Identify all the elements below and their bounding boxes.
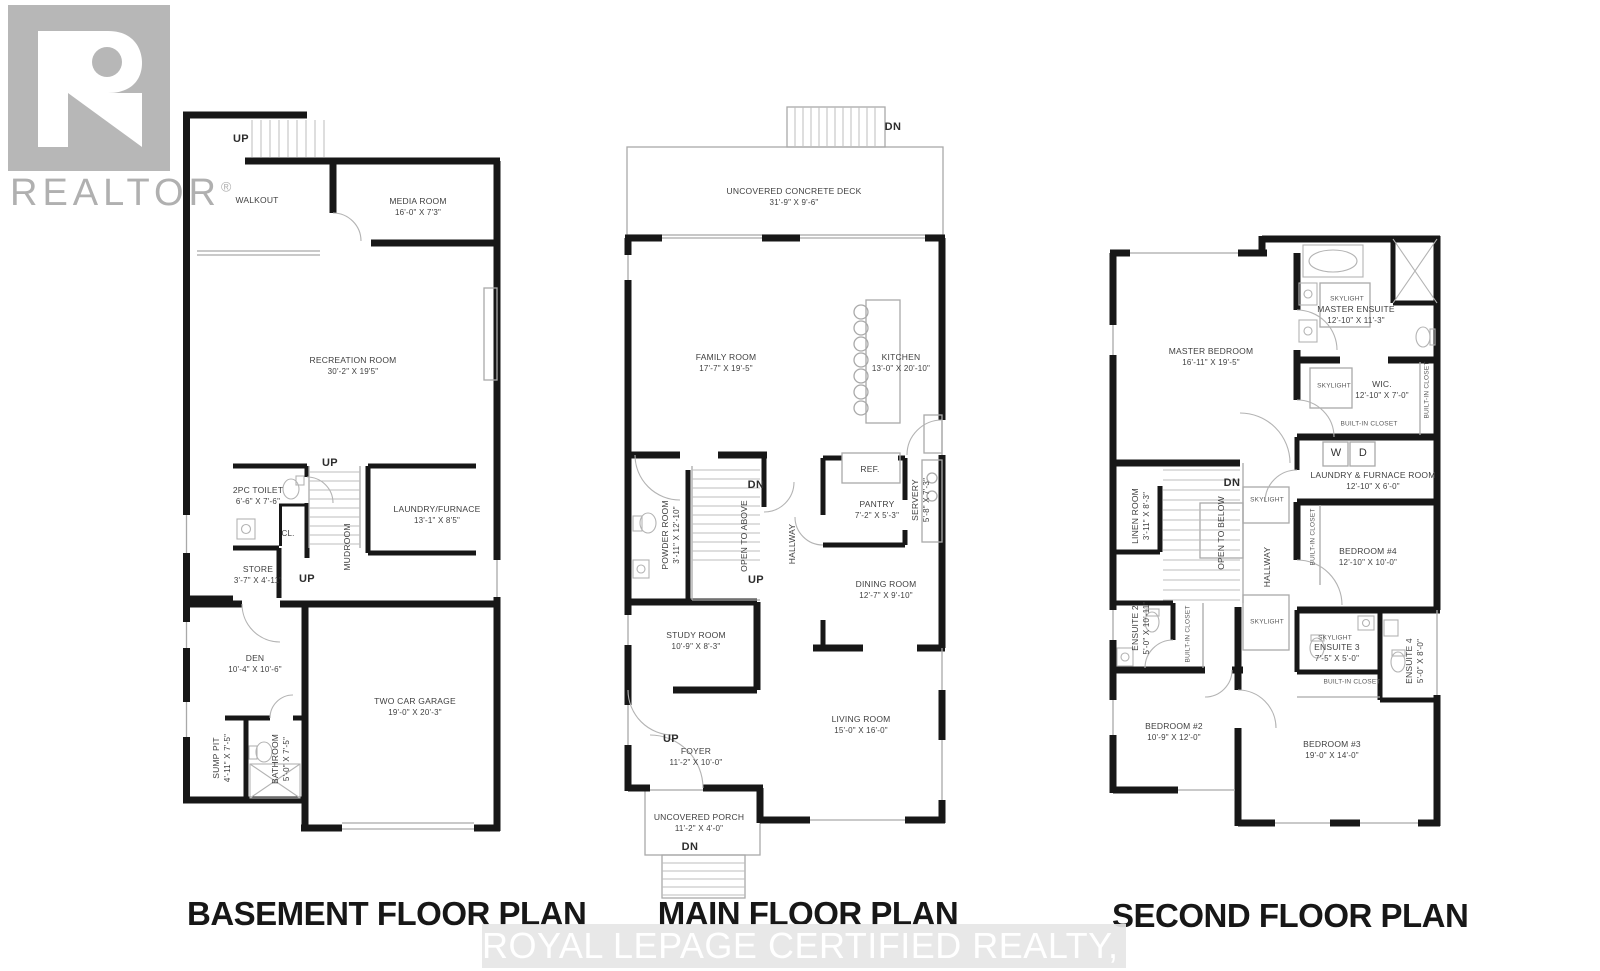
main-up-stairs-label: UP <box>748 573 764 589</box>
room-label-foyer: FOYER11'-2" X 10'-0" <box>670 745 723 769</box>
basement-up-store-label: UP <box>299 572 315 588</box>
built-in-closet-label-bed4: BUILT-IN CLOSET <box>1308 508 1317 565</box>
basement-up-stairs-label: UP <box>233 132 249 148</box>
room-label-hallway-second: HALLWAY <box>1261 547 1273 587</box>
room-label-laundry-furnace-room: LAUNDRY & FURNACE ROOM12'-10" X 6'-0" <box>1311 469 1436 493</box>
room-label-living-room: LIVING ROOM15'-0" X 16'-0" <box>832 713 891 737</box>
washer-label: W <box>1331 446 1342 462</box>
built-in-closet-label-wic-bottom: BUILT-IN CLOSET <box>1340 419 1397 428</box>
open-to-below-label: OPEN TO BELOW <box>1215 496 1227 570</box>
room-label-uncovered-porch: UNCOVERED PORCH11'-2" X 4'-0" <box>654 811 744 835</box>
room-label-dining-room: DINING ROOM12'-7" X 9'-10" <box>856 578 917 602</box>
room-label-mudroom: MUDROOM <box>341 523 353 570</box>
room-label-recreation-room: RECREATION ROOM30'-2" X 19'5" <box>310 354 397 378</box>
room-label-walkout: WALKOUT <box>235 194 278 206</box>
brokerage-watermark: ROYAL LEPAGE CERTIFIED REALTY, Brokerage <box>482 924 1126 968</box>
built-in-closet-label-ensuite2: BUILT-IN CLOSET <box>1183 605 1192 662</box>
room-label-kitchen: KITCHEN13'-0" X 20'-10" <box>872 351 930 375</box>
room-label-powder-room: POWDER ROOM3'-11" X 12'-10" <box>659 500 683 569</box>
open-to-above-label: OPEN TO ABOVE <box>738 500 750 572</box>
room-label-bedroom-4: BEDROOM #412'-10" X 10'-0" <box>1339 545 1397 569</box>
skylight-label-hall-center: SKYLIGHT <box>1250 617 1284 626</box>
room-label-sump-pit: SUMP PIT4'-11" X 7'-5" <box>210 734 234 782</box>
room-label-store: STORE3'-7" X 4'-11" <box>234 563 282 587</box>
room-label-den: DEN10'-4" X 10'-6" <box>228 652 282 676</box>
room-label-uncovered-concrete-deck: UNCOVERED CONCRETE DECK31'-9" X 9'-6" <box>727 185 862 209</box>
room-label-laundry-furnace: LAUNDRY/FURNACE13'-1" X 8'5" <box>394 503 481 527</box>
main-dn-deck-label: DN <box>885 120 902 136</box>
closet-label: CL. <box>281 528 294 540</box>
room-label-media-room: MEDIA ROOM16'-0" X 7'3" <box>389 195 446 219</box>
second-dn-stairs-label: DN <box>1224 476 1241 492</box>
room-label-family-room: FAMILY ROOM17'-7" X 19'-5" <box>696 351 756 375</box>
room-label-master-ensuite: MASTER ENSUITE12'-10" X 11'-3" <box>1317 303 1394 327</box>
floor-plan-page: { "branding": { "logo_text": "REALTOR", … <box>0 0 1600 971</box>
skylight-label-hall-top: SKYLIGHT <box>1250 495 1284 504</box>
refrigerator-label: REF. <box>860 463 879 475</box>
room-label-bedroom-3: BEDROOM #319'-0" X 14'-0" <box>1303 738 1361 762</box>
room-label-ensuite-4: ENSUITE 45'-0" X 8'-0" <box>1403 638 1427 684</box>
room-label-master-bedroom: MASTER BEDROOM16'-11" X 19'-5" <box>1169 345 1254 369</box>
realtor-logo-icon <box>8 5 170 171</box>
room-label-2pc-toilet: 2PC TOILET6'-6" X 7'-6" <box>233 484 283 508</box>
room-label-ensuite-2: ENSUITE 25'-0" X 10'-11" <box>1129 602 1153 655</box>
room-label-bedroom-2: BEDROOM #210'-9" X 12'-0" <box>1145 720 1203 744</box>
room-label-pantry: PANTRY7'-2" X 5'-3" <box>855 498 899 522</box>
built-in-closet-label-wic-right: BUILT-IN CLOSET <box>1422 361 1431 418</box>
dryer-label: D <box>1359 446 1367 462</box>
room-label-bathroom: BATHROOM5'-0" X 7'-5" <box>269 734 293 784</box>
basement-up-mid-label: UP <box>322 456 338 472</box>
room-label-linen-room: LINEN ROOM3'-11" X 8'-3" <box>1129 488 1153 544</box>
room-label-ensuite-3: ENSUITE 37'-5" X 5'-0" <box>1314 641 1360 665</box>
basement-floor-plan-drawing <box>175 95 515 845</box>
room-label-two-car-garage: TWO CAR GARAGE19'-0" X 20'-3" <box>374 695 456 719</box>
room-label-wic: WIC.12'-10" X 7'-0" <box>1355 378 1409 402</box>
main-dn-porch-label: DN <box>682 840 699 856</box>
room-label-study-room: STUDY ROOM10'-9" X 8'-3" <box>666 629 725 653</box>
skylight-label-wic: SKYLIGHT <box>1317 381 1351 390</box>
main-dn-stairs-label: DN <box>748 478 765 494</box>
room-label-servery: SERVERY5'-8" X 7'-3" <box>909 478 933 522</box>
room-label-hallway-main: HALLWAY <box>786 524 798 564</box>
built-in-closet-label-ensuite3: BUILT-IN CLOSET <box>1323 677 1380 686</box>
basement-plan-title: BASEMENT FLOOR PLAN <box>187 895 517 933</box>
